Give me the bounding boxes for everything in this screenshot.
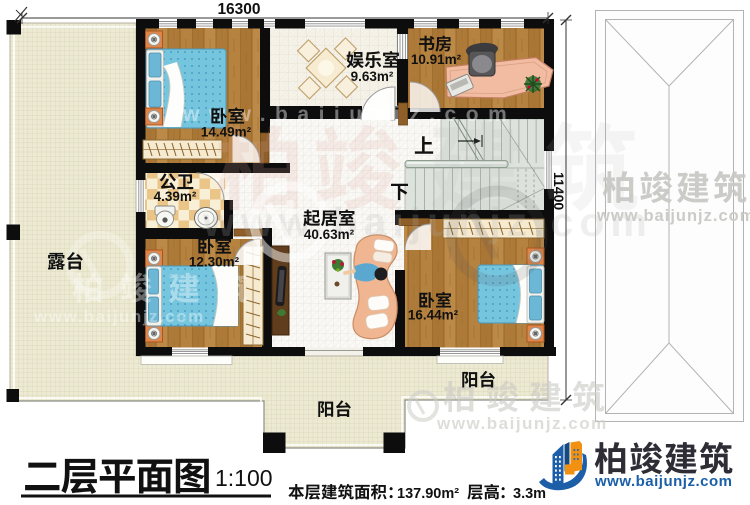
- svg-text:1:100: 1:100: [215, 465, 273, 491]
- svg-text:www.baijunjz.com: www.baijunjz.com: [594, 473, 732, 490]
- svg-text:www.baijunjz.com: www.baijunjz.com: [33, 307, 205, 326]
- svg-text:9.63m²: 9.63m²: [351, 69, 394, 84]
- svg-text:10.91m²: 10.91m²: [411, 52, 462, 67]
- svg-text:137.90m²: 137.90m²: [397, 486, 459, 502]
- svg-text:www.baijunjz.com: www.baijunjz.com: [596, 207, 750, 225]
- svg-text:www.baijunjz.com: www.baijunjz.com: [436, 414, 608, 433]
- svg-text:16300: 16300: [217, 1, 260, 18]
- svg-text:4.39m²: 4.39m²: [154, 189, 197, 204]
- svg-text:16.44m²: 16.44m²: [408, 308, 459, 323]
- svg-text:3.3m: 3.3m: [513, 486, 546, 502]
- svg-text:40.63m²: 40.63m²: [304, 227, 355, 242]
- svg-text:11400: 11400: [551, 172, 567, 210]
- svg-text:14.49m²: 14.49m²: [201, 125, 252, 140]
- svg-text:12.30m²: 12.30m²: [189, 255, 240, 270]
